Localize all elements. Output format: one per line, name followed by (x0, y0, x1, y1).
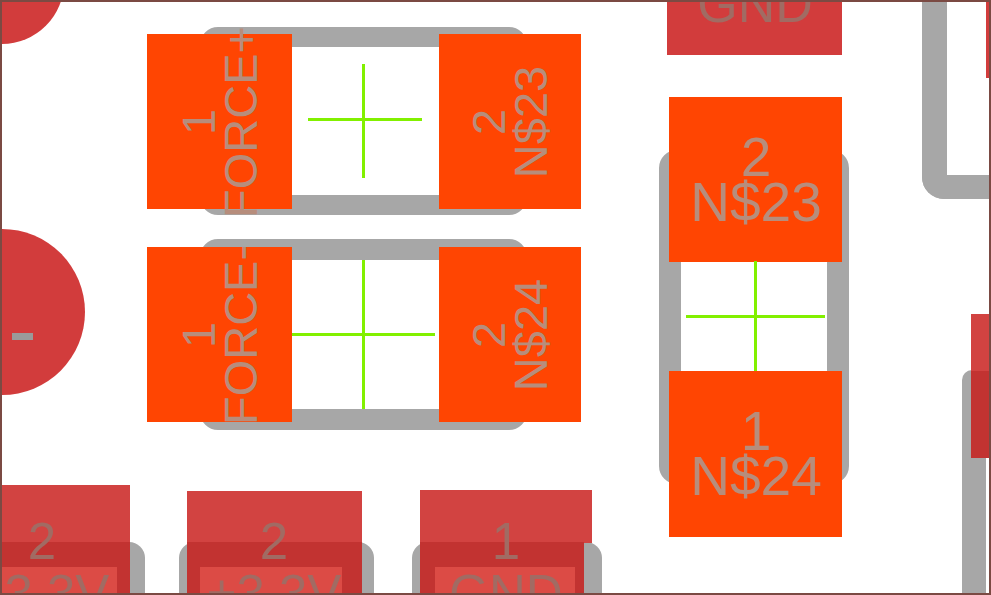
pad-label-block: 1 FORCE+ (178, 26, 262, 218)
pad-edge-right-lower[interactable] (971, 371, 991, 458)
net-name-label: N$24 (510, 279, 552, 391)
pad-label-block: 2 N$23 (690, 135, 821, 225)
pad-label-block: 1 FORCE- (178, 245, 262, 425)
pad-label-block: 2 N$24 (468, 279, 552, 391)
pad-label-block: 2 +3.3V (0, 516, 109, 595)
pad-edge-top-right[interactable] (986, 2, 991, 78)
pcb-canvas[interactable]: GND 1 FORCE+ 2 N$23 1 FORCE- 2 N$24 2 N$… (0, 0, 991, 595)
round-pad-top-left[interactable] (0, 0, 64, 44)
net-name-label: N$23 (690, 180, 821, 225)
pad-number-label: 2 (207, 516, 342, 568)
origin-cross-r1-horizontal[interactable] (308, 118, 422, 121)
pad-edge-right-upper[interactable] (971, 314, 991, 371)
net-name-label: +3.3V (207, 568, 342, 595)
pad-label-block: 1 GND (449, 516, 562, 595)
pad-number-label: 2 (0, 516, 109, 568)
pad-label-block: 1 N$24 (690, 409, 821, 499)
silk-text-fragment (12, 333, 33, 340)
net-name-label: FORCE+ (220, 26, 262, 218)
round-pad-left[interactable] (0, 229, 85, 395)
pad-label-block: 2 N$23 (468, 66, 552, 178)
net-name-label: N$23 (510, 66, 552, 178)
net-name-label: GND (449, 568, 562, 595)
origin-cross-r1-vertical[interactable] (362, 64, 365, 178)
origin-cross-r3-vertical[interactable] (754, 261, 757, 371)
silk-outline-top-right[interactable] (922, 2, 991, 199)
net-name-label: FORCE- (220, 245, 262, 425)
pad-label-block: 2 +3.3V (207, 516, 342, 595)
net-name-label: GND (697, 0, 813, 30)
net-name-label: +3.3V (0, 568, 109, 595)
pad-number-label: 1 (449, 516, 562, 568)
origin-cross-r2-vertical[interactable] (362, 260, 365, 409)
net-name-label: N$24 (690, 454, 821, 499)
